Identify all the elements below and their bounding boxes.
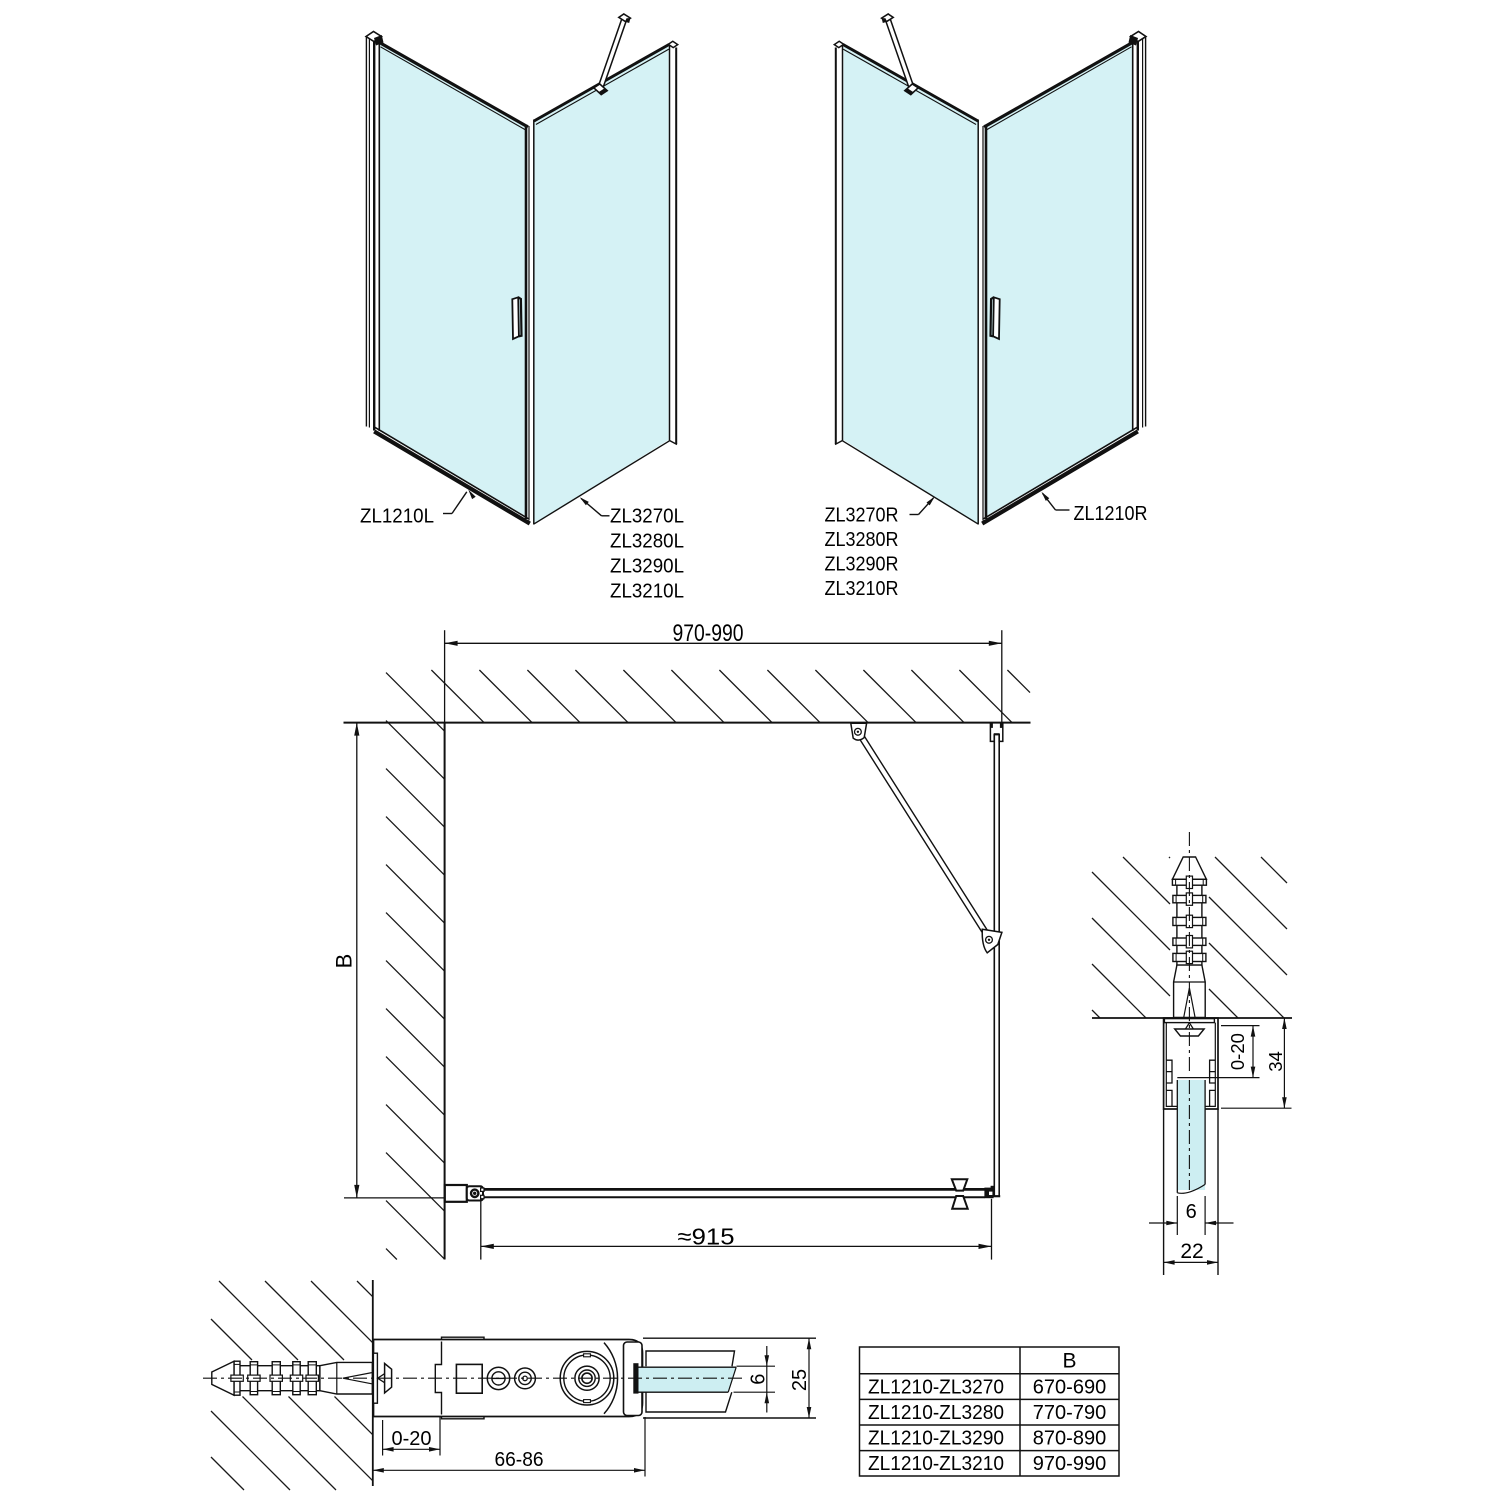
svg-text:ZL1210-ZL3270: ZL1210-ZL3270 [868,1376,1004,1398]
svg-text:34: 34 [1265,1051,1286,1072]
svg-text:670-690: 670-690 [1033,1376,1106,1398]
svg-text:0-20: 0-20 [392,1428,432,1450]
svg-text:870-890: 870-890 [1033,1428,1106,1450]
svg-text:0-20: 0-20 [1227,1033,1248,1070]
svg-text:ZL1210-ZL3290: ZL1210-ZL3290 [868,1428,1004,1450]
svg-text:6: 6 [748,1374,770,1385]
svg-text:970-990: 970-990 [1033,1453,1106,1475]
svg-text:ZL3210L: ZL3210L [610,580,684,603]
svg-text:ZL1210L: ZL1210L [360,505,434,528]
svg-text:ZL3280R: ZL3280R [825,528,899,551]
svg-text:ZL1210R: ZL1210R [1074,502,1148,525]
svg-text:ZL3280L: ZL3280L [610,530,684,553]
svg-text:25: 25 [789,1369,811,1391]
svg-text:770-790: 770-790 [1033,1402,1106,1424]
svg-text:B: B [332,954,357,969]
svg-text:ZL1210-ZL3210: ZL1210-ZL3210 [868,1453,1004,1475]
svg-text:ZL3290R: ZL3290R [825,553,899,576]
svg-text:970-990: 970-990 [673,620,744,647]
svg-text:ZL1210-ZL3280: ZL1210-ZL3280 [868,1402,1004,1424]
svg-text:ZL3270L: ZL3270L [610,505,684,528]
svg-text:66-86: 66-86 [495,1449,544,1471]
svg-text:B: B [1062,1350,1076,1373]
svg-text:22: 22 [1180,1240,1203,1263]
svg-text:ZL3290L: ZL3290L [610,555,684,578]
svg-text:ZL3210R: ZL3210R [825,577,899,600]
svg-text:≈915: ≈915 [678,1224,735,1250]
svg-text:ZL3270R: ZL3270R [825,504,899,527]
svg-text:6: 6 [1186,1201,1197,1223]
